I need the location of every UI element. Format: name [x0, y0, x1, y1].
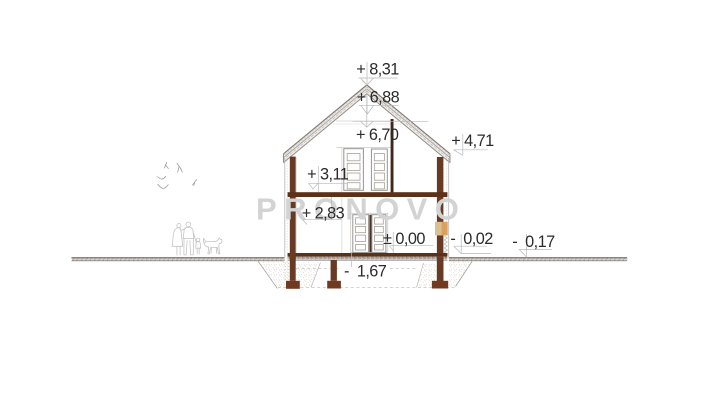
- svg-text:+ 4,71: + 4,71: [451, 132, 494, 150]
- svg-text:+ 3,11: + 3,11: [307, 165, 349, 183]
- svg-text:- 0,17: - 0,17: [512, 233, 555, 251]
- svg-text:+ 8,31: + 8,31: [356, 61, 399, 79]
- svg-text:- 1,67: - 1,67: [344, 263, 387, 281]
- svg-text:+ 2,83: + 2,83: [302, 205, 345, 223]
- svg-text:- 0,02: - 0,02: [450, 230, 493, 248]
- svg-text:+ 6,70: + 6,70: [356, 126, 399, 144]
- svg-text:+ 6,88: + 6,88: [357, 88, 400, 106]
- svg-text:± 0,00: ± 0,00: [383, 230, 425, 248]
